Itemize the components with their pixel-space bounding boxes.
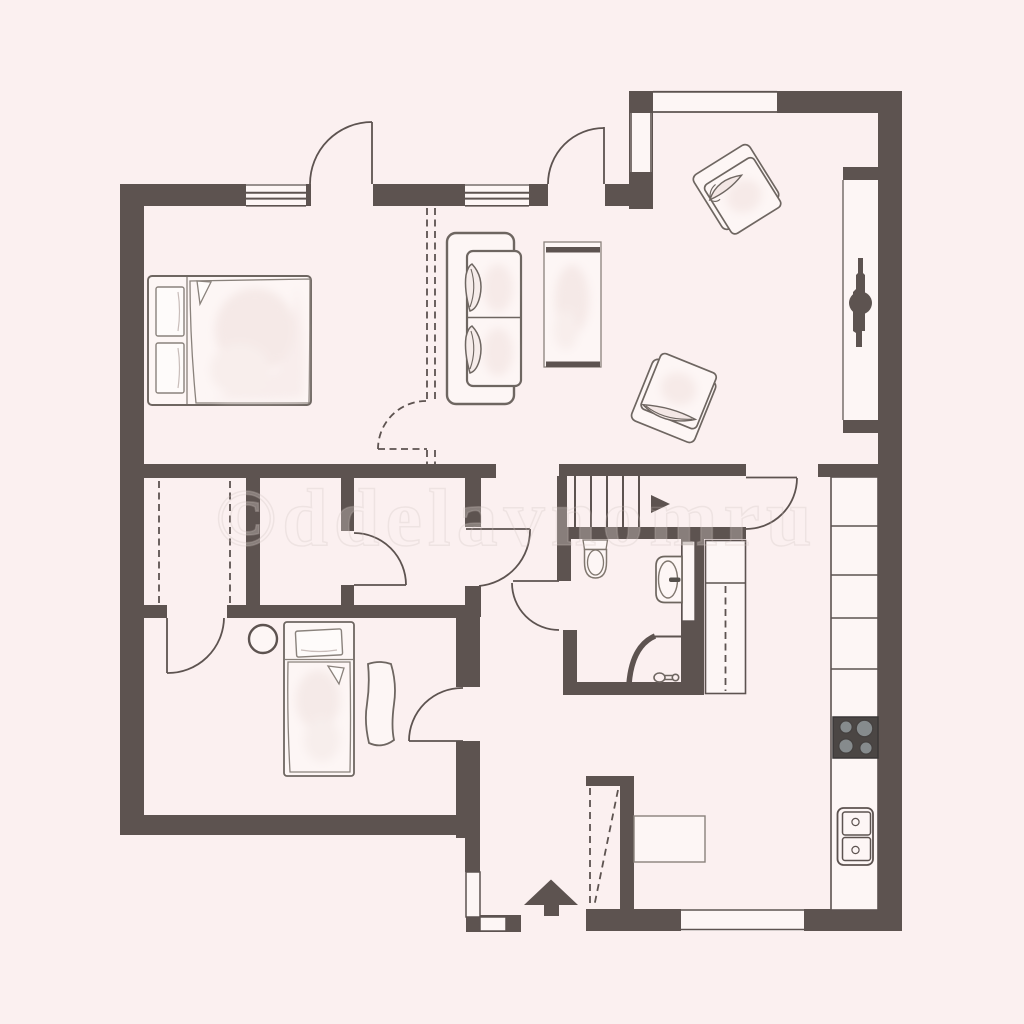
svg-text:©ddelavnomru: ©ddelavnomru: [215, 472, 818, 563]
